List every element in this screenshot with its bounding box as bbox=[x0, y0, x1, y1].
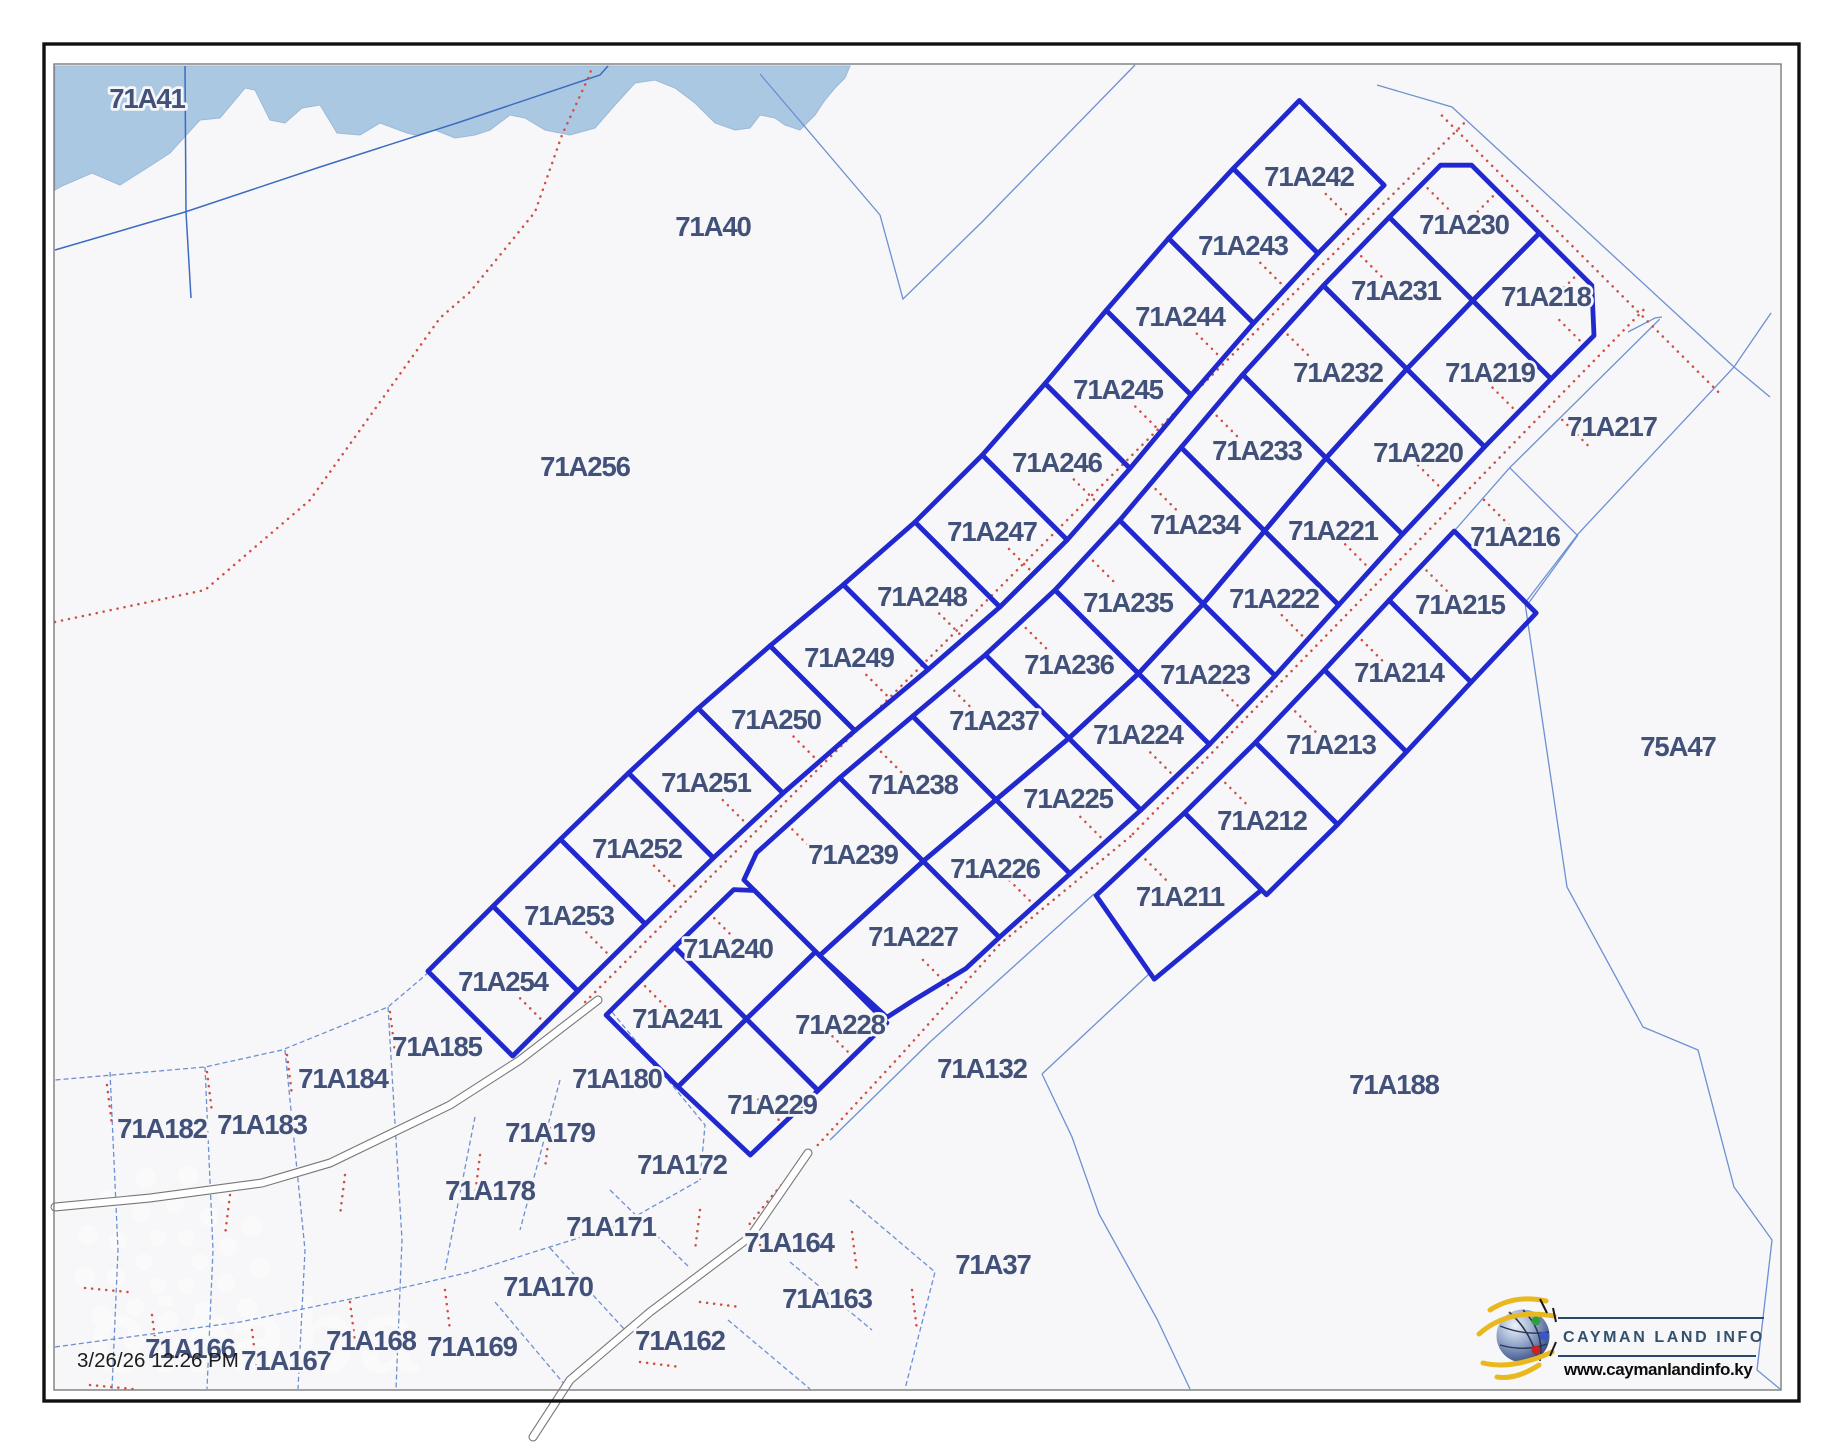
svg-text:71A240: 71A240 bbox=[683, 933, 774, 964]
svg-text:71A252: 71A252 bbox=[592, 833, 683, 864]
svg-text:71A185: 71A185 bbox=[392, 1031, 483, 1062]
svg-text:71A228: 71A228 bbox=[795, 1009, 886, 1040]
svg-text:71A254: 71A254 bbox=[458, 966, 550, 997]
svg-text:71A239: 71A239 bbox=[808, 839, 899, 870]
svg-text:71A245: 71A245 bbox=[1073, 374, 1164, 405]
svg-text:71A246: 71A246 bbox=[1012, 447, 1103, 478]
svg-text:71A162: 71A162 bbox=[635, 1325, 726, 1356]
svg-text:71A212: 71A212 bbox=[1217, 805, 1308, 836]
svg-text:71A229: 71A229 bbox=[727, 1089, 818, 1120]
svg-text:www.caymanlandinfo.ky: www.caymanlandinfo.ky bbox=[1563, 1360, 1753, 1379]
svg-text:71A235: 71A235 bbox=[1083, 587, 1174, 618]
svg-text:71A253: 71A253 bbox=[524, 900, 615, 931]
svg-text:71A183: 71A183 bbox=[217, 1109, 308, 1140]
svg-text:71A234: 71A234 bbox=[1150, 509, 1242, 540]
svg-text:71A238: 71A238 bbox=[868, 769, 959, 800]
svg-text:71A164: 71A164 bbox=[744, 1227, 836, 1258]
svg-text:71A221: 71A221 bbox=[1288, 515, 1379, 546]
svg-text:71A230: 71A230 bbox=[1419, 209, 1510, 240]
svg-text:71A256: 71A256 bbox=[540, 451, 631, 482]
svg-text:71A231: 71A231 bbox=[1351, 275, 1442, 306]
svg-text:71A179: 71A179 bbox=[505, 1117, 596, 1148]
svg-text:71A232: 71A232 bbox=[1293, 357, 1384, 388]
svg-text:71A241: 71A241 bbox=[632, 1003, 723, 1034]
svg-text:71A214: 71A214 bbox=[1354, 657, 1446, 688]
svg-text:71A242: 71A242 bbox=[1264, 161, 1355, 192]
svg-text:71A237: 71A237 bbox=[949, 705, 1040, 736]
svg-text:71A247: 71A247 bbox=[947, 516, 1038, 547]
svg-text:71A169: 71A169 bbox=[427, 1331, 518, 1362]
svg-text:71A225: 71A225 bbox=[1023, 783, 1114, 814]
svg-text:75A47: 75A47 bbox=[1640, 731, 1716, 762]
svg-text:71A167: 71A167 bbox=[241, 1345, 332, 1376]
svg-text:CAYMAN LAND INFO: CAYMAN LAND INFO bbox=[1563, 1329, 1765, 1346]
svg-text:71A41: 71A41 bbox=[109, 83, 185, 114]
svg-text:71A224: 71A224 bbox=[1093, 719, 1185, 750]
svg-text:71A220: 71A220 bbox=[1373, 437, 1464, 468]
svg-text:71A170: 71A170 bbox=[503, 1271, 594, 1302]
svg-text:71A168: 71A168 bbox=[326, 1325, 417, 1356]
svg-text:71A178: 71A178 bbox=[445, 1175, 536, 1206]
svg-text:71A132: 71A132 bbox=[937, 1053, 1028, 1084]
svg-text:3/26/26 12:26 PM: 3/26/26 12:26 PM bbox=[77, 1349, 239, 1372]
svg-text:71A223: 71A223 bbox=[1160, 659, 1251, 690]
svg-text:71A222: 71A222 bbox=[1229, 583, 1320, 614]
svg-text:71A40: 71A40 bbox=[675, 211, 751, 242]
svg-text:71A211: 71A211 bbox=[1136, 881, 1225, 912]
svg-text:71A233: 71A233 bbox=[1212, 435, 1303, 466]
svg-text:71A218: 71A218 bbox=[1501, 281, 1592, 312]
svg-text:71A217: 71A217 bbox=[1567, 411, 1658, 442]
svg-text:71A184: 71A184 bbox=[298, 1063, 390, 1094]
svg-text:71A227: 71A227 bbox=[868, 921, 959, 952]
svg-text:71A243: 71A243 bbox=[1198, 230, 1289, 261]
svg-text:71A163: 71A163 bbox=[782, 1283, 873, 1314]
svg-text:71A182: 71A182 bbox=[117, 1113, 208, 1144]
svg-text:71A250: 71A250 bbox=[731, 704, 822, 735]
svg-text:71A248: 71A248 bbox=[877, 581, 968, 612]
svg-text:71A236: 71A236 bbox=[1024, 649, 1115, 680]
svg-text:71A37: 71A37 bbox=[955, 1249, 1031, 1280]
svg-text:71A215: 71A215 bbox=[1415, 589, 1506, 620]
svg-text:71A172: 71A172 bbox=[637, 1149, 728, 1180]
svg-text:71A244: 71A244 bbox=[1135, 301, 1227, 332]
svg-text:71A180: 71A180 bbox=[572, 1063, 663, 1094]
svg-text:71A249: 71A249 bbox=[804, 642, 895, 673]
svg-text:71A226: 71A226 bbox=[950, 853, 1041, 884]
svg-text:71A188: 71A188 bbox=[1349, 1069, 1440, 1100]
svg-text:71A219: 71A219 bbox=[1445, 357, 1536, 388]
svg-text:71A213: 71A213 bbox=[1286, 729, 1377, 760]
svg-text:71A171: 71A171 bbox=[566, 1211, 657, 1242]
svg-text:71A216: 71A216 bbox=[1470, 521, 1561, 552]
svg-text:71A251: 71A251 bbox=[661, 767, 752, 798]
